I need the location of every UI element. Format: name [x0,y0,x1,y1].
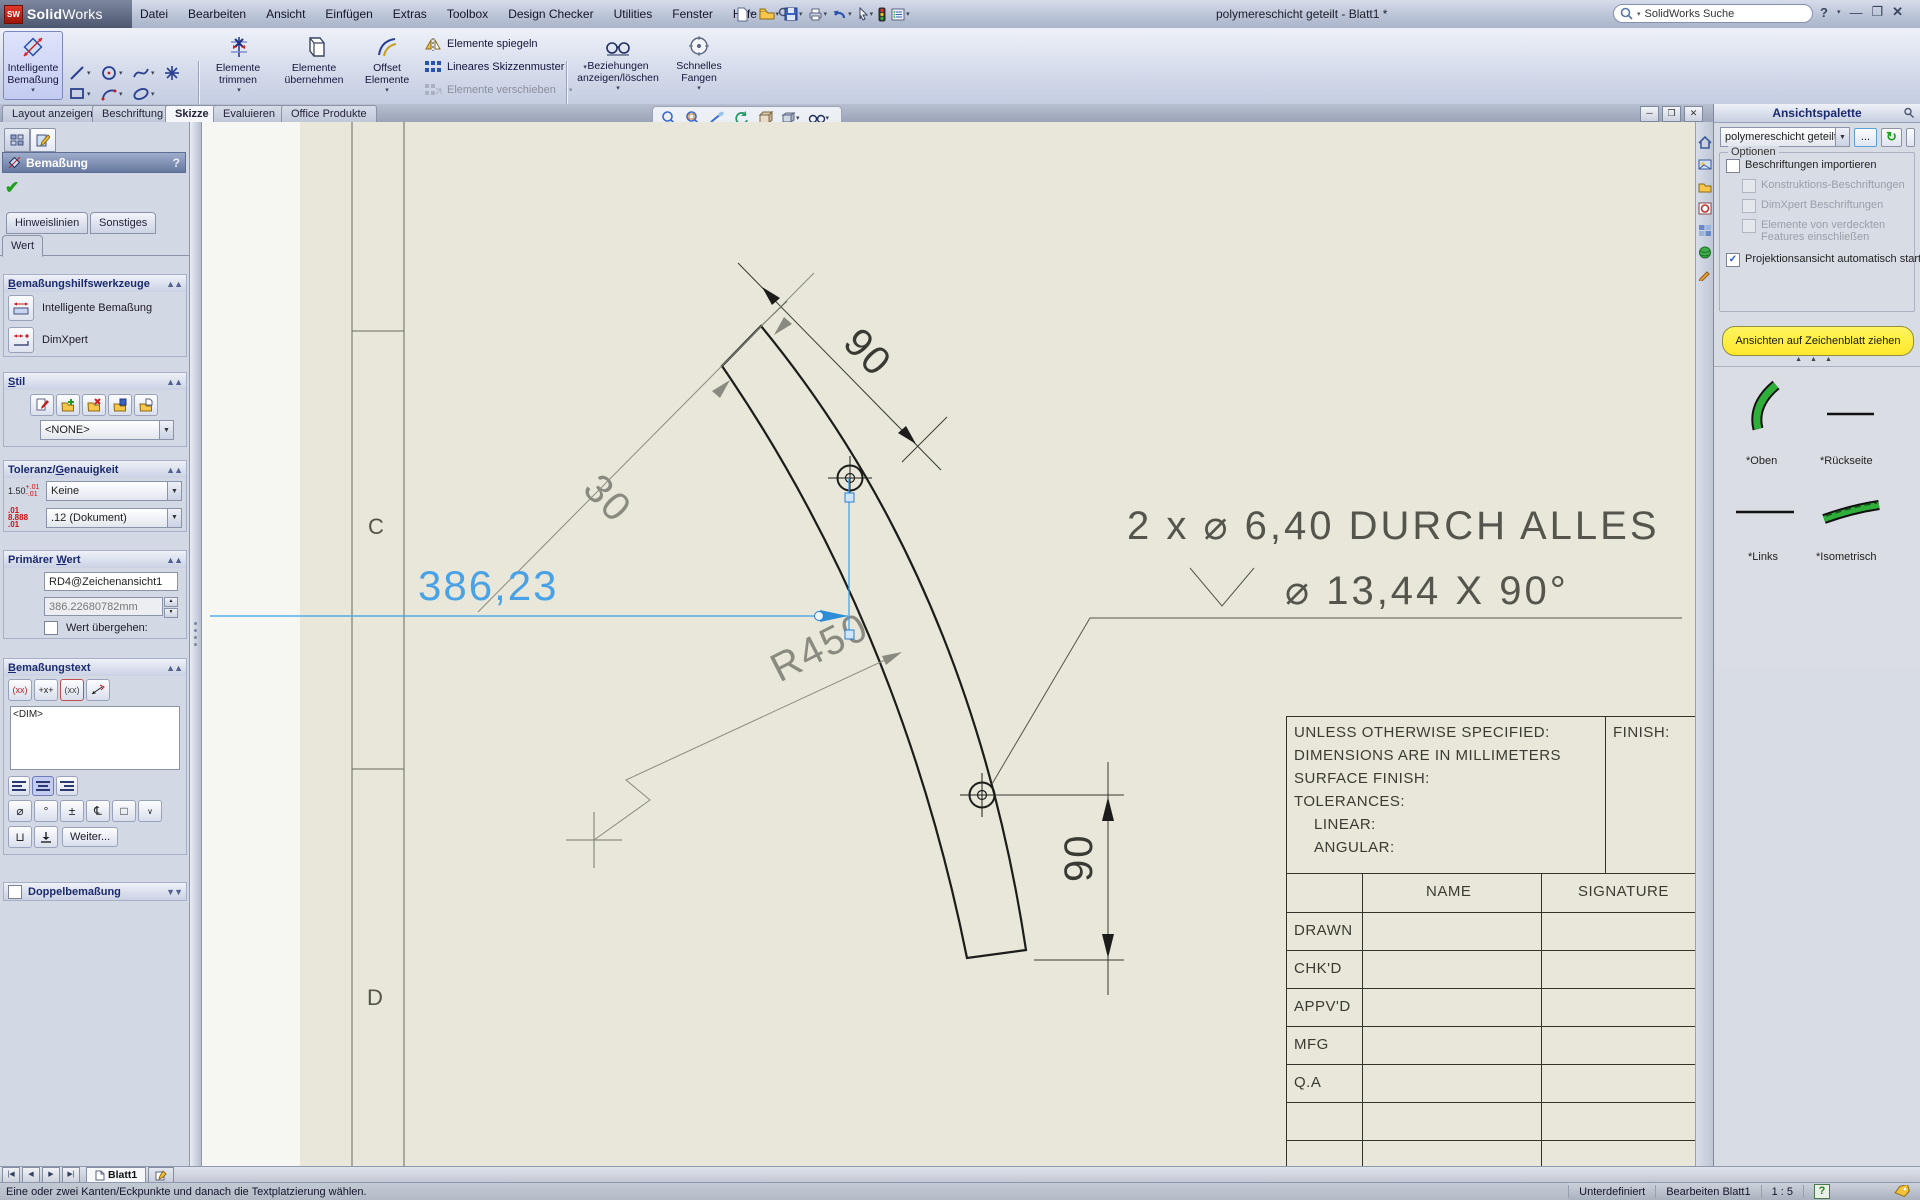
menu-item-bearbeiten[interactable]: Bearbeiten [188,7,246,21]
status-scale: 1 : 5 [1761,1185,1803,1198]
new-document-caret-icon[interactable]: ▾ [750,10,754,18]
smart-dimension-tool[interactable]: Intelligente Bemaßung [4,292,186,324]
style-delete-button[interactable] [82,394,106,416]
title-block: UNLESS OTHERWISE SPECIFIED: DIMENSIONS A… [1286,716,1695,1166]
refresh-palette-button[interactable]: ↻ [1881,128,1902,147]
menu-item-toolbox[interactable]: Toolbox [447,7,488,21]
style-dropdown-caret-icon[interactable]: ▼ [159,421,173,439]
leader-text-button[interactable] [86,679,110,701]
section-header[interactable]: Primärer Wert▲▲ [4,551,186,568]
offset-entities-icon [375,35,399,59]
sketch-line-caret-icon[interactable]: ▾ [87,69,91,77]
browse-document-button[interactable]: ... [1854,128,1877,147]
section-tolerance: Toleranz/Genauigkeit▲▲ 1.50 +.01-.01 Kei… [3,460,187,532]
next-sheet-button[interactable]: ▶ [42,1167,60,1183]
sketch-line-button[interactable]: ▾ [68,62,94,84]
dimension-386-text[interactable]: 386,23 [418,562,558,609]
document-dropdown-caret-icon[interactable]: ▼ [1835,128,1849,146]
check-auto-projected-view[interactable]: ✓Projektionsansicht automatisch starten [1726,253,1910,267]
command-manager-toolbar: IntelligenteBemaßung ▾ ▾ ▾ ▾ ▾ ▾ ▾ ▾ ▾ E… [0,28,1920,105]
pm-tab-sonstiges[interactable]: Sonstiges [90,212,156,234]
view-palette-header: Ansichtspalette [1714,104,1920,123]
add-sheet-tab[interactable] [148,1167,174,1183]
collapse-chevron-icon[interactable]: ▲▲ [166,663,182,673]
section-header[interactable]: Doppelbemaßung▼▼ [4,883,186,900]
trim-entities-icon [227,35,251,59]
file-explorer-icon[interactable] [1698,180,1712,193]
tb-row-drawn: DRAWN [1294,922,1353,939]
check-dimxpert-annotations[interactable]: DimXpert Beschriftungen [1742,199,1910,213]
more-symbols-button[interactable]: Weiter... [62,827,118,847]
solidworks-cube-icon: SW [4,5,23,24]
trim-entities-caret-icon[interactable]: ▾ [207,86,271,94]
resources-home-icon[interactable] [1698,136,1712,149]
thumb-oben[interactable] [1757,385,1776,429]
tolerance-caret-icon[interactable]: ▼ [167,482,181,500]
new-document-button[interactable]: ▾ [735,4,755,24]
section-header[interactable]: BBemaßungshilfswerkzeugeemaßungshilfswer… [4,275,186,292]
doc-close-button[interactable]: ✕ [1684,106,1703,122]
sheet-tab-blatt1[interactable]: Blatt1 [86,1167,146,1183]
app-name: SolidWorks [27,6,103,22]
sketch-ellipse-button[interactable]: ▾ [132,83,158,105]
style-dropdown-value: <NONE> [41,424,159,436]
align-right-button[interactable] [56,776,78,796]
command-tabs-strip: Layout anzeigen Beschriftung Skizze Eval… [0,104,1713,123]
section-header[interactable]: Toleranz/Genauigkeit▲▲ [4,461,186,478]
view-label-rueckseite[interactable]: *Rückseite [1820,455,1873,467]
pm-ok-button[interactable]: ✔ [5,178,19,198]
style-load-button[interactable] [134,394,158,416]
tb-note-4: TOLERANCES: [1294,793,1405,810]
dimxpert-tool[interactable]: DimXpert [4,324,186,356]
value-spinner[interactable]: ▲▼ [164,597,178,618]
spinner-up-icon[interactable]: ▲ [164,597,178,607]
sketch-arc-button[interactable]: ▾ [100,83,126,105]
style-apply-default-button[interactable] [30,394,54,416]
relations-label2: anzeigen/löschen [577,72,659,84]
trim-entities-label: Elemente trimmen [207,62,269,86]
pm-tab-hinweislinien[interactable]: Hinweislinien [6,212,88,234]
quick-snaps-label1: Schnelles [676,60,722,72]
symbol-diameter-button[interactable]: ⌀ [8,800,32,822]
open-caret-icon[interactable]: ▾ [776,10,780,18]
dimxpert-tool-icon [8,327,34,353]
move-entities-icon [424,82,442,98]
add-parentheses-button[interactable]: (xx) [8,679,32,701]
tab-layout-anzeigen[interactable]: Layout anzeigen [2,105,103,123]
symbol-square-button[interactable]: □ [112,800,136,822]
check-label: Konstruktions-Beschriftungen [1761,179,1905,191]
open-button[interactable]: ▾ [758,4,781,24]
sketch-ellipse-caret-icon[interactable]: ▾ [151,90,155,98]
style-dropdown[interactable]: <NONE>▼ [40,420,174,440]
status-state: Unterdefiniert [1568,1185,1655,1198]
view-label-isometrisch[interactable]: *Isometrisch [1816,551,1877,563]
menu-bar: Datei Bearbeiten Ansicht Einfügen Extras… [140,0,789,28]
pm-help-button[interactable]: ? [173,156,180,170]
menu-item-fenster[interactable]: Fenster [672,7,713,21]
section-primary-value: Primärer Wert▲▲ RD4@Zeichenansicht1 386.… [3,550,187,639]
options-group: Optionen Beschriftungen importieren Kons… [1719,152,1915,312]
convert-entities-button[interactable]: Elemente übernehmen [276,31,354,100]
splitter-grip[interactable] [194,622,198,658]
design-library-icon[interactable] [1698,158,1712,171]
panel-splitter[interactable] [190,122,202,1166]
oval-text-button[interactable]: (xx) [60,679,84,701]
selection-handle [845,630,854,639]
window-controls: ? ▾ — ❐ ✕ [1820,4,1903,20]
view-label-oben[interactable]: *Oben [1746,455,1777,467]
doc-minimize-button[interactable]: ─ [1640,106,1659,122]
tab-beschriftung[interactable]: Beschriftung [92,105,173,123]
dimension-icon [8,156,21,169]
first-sheet-button[interactable]: |◀ [2,1167,20,1183]
view-label-links[interactable]: *Links [1748,551,1778,563]
view-thumbnails: *Oben *Rückseite *Links *Isometrisch [1714,366,1920,667]
linear-pattern-icon [424,59,442,75]
options-group-label: Optionen [1728,146,1779,158]
document-dropdown[interactable]: polymereschicht geteilt▼ [1720,127,1850,147]
dimension-90-vertical[interactable]: 90 [996,762,1124,995]
tb-row-mfg: MFG [1294,1036,1329,1053]
title-bar: SW SolidWorks Datei Bearbeiten Ansicht E… [0,0,1920,29]
align-center-button[interactable] [32,776,54,796]
dual-dimension-label: Doppelbemaßung [28,886,121,898]
symbol-degree-button[interactable]: ° [34,800,58,822]
override-value-label: Wert übergehen: [66,622,148,634]
prev-sheet-button[interactable]: ◀ [22,1167,40,1183]
clipped-button[interactable] [1906,128,1915,147]
tolerance-type-dropdown[interactable]: Keine▼ [46,481,182,501]
section-dual-dimension: Doppelbemaßung▼▼ [3,882,187,901]
smart-dimension-label2: Bemaßung [7,74,58,86]
dimension-90-top-text[interactable]: 90 [835,320,900,385]
app-name-light: Works [62,6,102,22]
collapse-chevron-icon[interactable]: ▲▲ [166,555,182,565]
app-name-bold: Solid [27,6,62,22]
quick-snaps-icon [688,35,710,57]
selection-handle [845,493,854,502]
check-hidden-feature-items[interactable]: Elemente von verdeckten Features einschl… [1742,219,1910,243]
palette-collapse-arrows-icon[interactable]: ▲▲▲ [1714,356,1920,363]
search-icon [1620,7,1633,20]
smart-dimension-button[interactable]: IntelligenteBemaßung ▾ [3,31,63,100]
print-button[interactable]: ▾ [807,4,829,24]
property-manager-header: Bemaßung ? [2,152,186,173]
linear-pattern-label: Lineares Skizzenmuster [447,61,564,73]
appearances-icon[interactable] [1698,224,1712,237]
document-title: polymereschicht geteilt - Blatt1 * [1216,7,1387,21]
undo-caret-icon[interactable]: ▾ [848,10,852,18]
style-save-button[interactable] [108,394,132,416]
task-pane-tab-strip [1695,122,1713,1166]
status-help[interactable]: ? [1803,1185,1840,1198]
tb-note-3: SURFACE FINISH: [1294,770,1430,787]
collapse-chevron-icon[interactable]: ▲▲ [166,465,182,475]
sketch-rectangle-button[interactable]: ▾ [68,83,94,105]
dim-token: <DIM> [13,709,43,720]
hide-show-caret-icon[interactable]: ▾ [826,114,830,122]
search-caret-icon[interactable]: ▾ [1637,10,1641,18]
offset-entities-label1: Offset [373,62,401,74]
property-manager-title: Bemaßung [26,156,88,170]
tb-row-appvd: APPV'D [1294,998,1351,1015]
view-palette-icon[interactable] [1698,202,1712,215]
performance-button[interactable] [877,4,887,24]
sheet-icon [95,1170,105,1181]
precision-icon: .018.888.01 [8,507,38,528]
help-caret-icon[interactable]: ▾ [1837,8,1841,16]
drag-views-button[interactable]: Ansichten auf Zeichenblatt ziehen [1722,326,1914,356]
last-sheet-button[interactable]: ▶| [62,1167,80,1183]
search-box[interactable]: ▾ SolidWorks Suche [1613,4,1813,23]
mirror-entities-icon [424,36,442,52]
precision-dropdown[interactable]: .12 (Dokument)▼ [46,508,182,528]
document-window-controls: ─ ❒ ✕ [1640,106,1703,122]
pin-icon[interactable] [1903,107,1915,119]
sketch-point-button[interactable] [164,62,190,84]
tab-evaluieren[interactable]: Evaluieren [213,105,285,123]
drawing-canvas[interactable]: C D [202,122,1695,1166]
sheet-tab-bar: |◀ ◀ ▶ ▶| Blatt1 [0,1166,1920,1182]
collapse-chevron-icon[interactable]: ▲▲ [166,377,182,387]
thumb-isometrisch[interactable] [1824,503,1879,519]
dimension-r450[interactable]: R450 [566,604,902,868]
save-button[interactable]: ▾ [783,4,804,24]
tb-row-qa: Q.A [1294,1074,1321,1091]
tb-note-5: LINEAR: [1314,816,1376,833]
dimension-90-vertical-text[interactable]: 90 [1057,834,1101,883]
display-delete-relations-button[interactable]: Beziehungenanzeigen/löschen ▾ [572,31,664,100]
select-caret-icon[interactable]: ▾ [870,10,874,18]
solidworks-window: SW SolidWorks Datei Bearbeiten Ansicht E… [0,0,1920,1200]
save-caret-icon[interactable]: ▾ [799,10,803,18]
feature-manager-tab[interactable] [4,128,30,152]
restore-button[interactable]: ❐ [1871,4,1883,20]
section-dimension-assist: BBemaßungshilfswerkzeugeemaßungshilfswer… [3,274,187,357]
dimension-30-text[interactable]: 30 [575,466,640,531]
convert-entities-icon [304,35,326,59]
status-hint: Eine oder zwei Kanten/Eckpunkte und dana… [0,1183,1568,1200]
quick-snaps-button[interactable]: SchnellesFangen ▾ [668,31,730,100]
smart-dimension-tool-icon [8,295,34,321]
close-button[interactable]: ✕ [1892,4,1903,20]
menu-item-datei[interactable]: Datei [140,7,168,21]
eyeglasses-icon [605,35,631,57]
symbol-depth-button[interactable] [34,826,58,848]
check-import-annotations[interactable]: Beschriftungen importieren [1726,159,1910,173]
check-label: DimXpert Beschriftungen [1761,199,1883,211]
menu-item-ansicht[interactable]: Ansicht [266,7,305,21]
sketch-spline-caret-icon[interactable]: ▾ [151,69,155,77]
view-palette-panel: Ansichtspalette polymereschicht geteilt▼… [1713,104,1920,1166]
zone-label-d: D [367,985,383,1010]
mirror-entities-button[interactable]: Elemente spiegeln [424,35,538,53]
smart-dimension-icon [21,35,45,59]
quick-access-toolbar: ▾ ▾ ▾ ▾ ▾ ▾ ▾ [735,3,911,25]
minimize-button[interactable]: — [1849,5,1862,20]
sketch-circle-button[interactable]: ▾ [100,62,126,84]
scenes-icon[interactable] [1698,246,1712,259]
countersink-icon [1190,568,1254,606]
collapse-chevron-icon[interactable]: ▲▲ [166,279,182,289]
status-tag-icon[interactable] [1840,1185,1920,1198]
check-label: Beschriftungen importieren [1745,159,1876,171]
smart-dimension-tool-label: Intelligente Bemaßung [42,302,152,314]
hole-callout-line2[interactable]: ⌀ 13,44 X 90° [1285,568,1569,614]
symbol-centerline-button[interactable]: ℄ [86,800,110,822]
tb-row-chkd: CHK'D [1294,960,1342,977]
smart-dimension-caret-icon[interactable]: ▾ [4,86,62,94]
doc-restore-button[interactable]: ❒ [1662,106,1681,122]
spinner-down-icon[interactable]: ▼ [164,608,178,618]
tb-note-2: DIMENSIONS ARE IN MILLIMETERS [1294,747,1561,764]
options-button[interactable]: ▾ [890,4,911,24]
dimension-text-area[interactable]: <DIM> [10,706,180,770]
section-header[interactable]: Stil▲▲ [4,373,186,390]
quick-snaps-caret-icon[interactable]: ▾ [669,84,729,92]
dimxpert-tool-label: DimXpert [42,334,88,346]
tb-finish-label: FINISH: [1613,724,1670,741]
check-label: Projektionsansicht automatisch starten [1745,253,1920,265]
options-caret-icon[interactable]: ▾ [906,10,910,18]
convert-entities-label: Elemente übernehmen [277,62,351,86]
search-input[interactable]: SolidWorks Suche [1645,8,1735,20]
property-manager-panel: Bemaßung ? ✔ Hinweislinien Sonstiges Wer… [0,122,190,1166]
override-value-checkbox[interactable] [44,621,58,635]
hole-callout-line1[interactable]: 2 x ⌀ 6,40 DURCH ALLES [1127,503,1660,549]
symbol-more-caret-icon[interactable]: ∨ [138,800,162,822]
trim-entities-button[interactable]: Elemente trimmen ▾ [206,31,272,100]
tolerance-type-icon: 1.50 +.01-.01 [8,484,38,498]
check-construction-annotations[interactable]: Konstruktions-Beschriftungen [1742,179,1910,193]
move-entities-label: Elemente verschieben [447,84,556,96]
offset-entities-label2: Elemente [365,74,409,86]
dimension-name-field[interactable]: RD4@Zeichenansicht1 [44,572,178,591]
help-button[interactable]: ? [1820,5,1828,20]
dual-dimension-checkbox[interactable] [8,885,22,899]
zone-label-c: C [368,514,384,539]
align-left-button[interactable] [8,776,30,796]
sheet-tab-label: Blatt1 [108,1169,137,1181]
offset-entities-caret-icon[interactable]: ▾ [359,86,415,94]
style-add-button[interactable] [56,394,80,416]
tb-note-6: ANGULAR: [1314,839,1395,856]
document-dropdown-value: polymereschicht geteilt [1721,131,1835,143]
print-caret-icon[interactable]: ▾ [824,10,828,18]
dimension-386-selected[interactable]: 386,23 [210,478,854,639]
display-style-caret-icon[interactable]: ▾ [796,114,800,122]
check-label: Elemente von verdeckten Features einschl… [1761,219,1910,243]
quick-snaps-label2: Fangen [681,72,717,84]
precision-value: .12 (Dokument) [47,512,167,524]
dimension-value-field[interactable]: 386.22680782mm [44,597,163,616]
symbol-counterbore-button[interactable]: ⊔ [8,826,32,848]
tab-office-produkte[interactable]: Office Produkte [281,105,377,123]
sketch-arc-caret-icon[interactable]: ▾ [119,90,123,98]
tb-note-1: UNLESS OTHERWISE SPECIFIED: [1294,724,1550,741]
offset-text-button[interactable]: +x+ [34,679,58,701]
sketch-circle-caret-icon[interactable]: ▾ [119,69,123,77]
mirror-entities-label: Elemente spiegeln [447,38,538,50]
section-dimension-text: Bemaßungstext▲▲ (xx) +x+ (xx) <DIM> ⌀ ° … [3,658,187,855]
relations-label1: Beziehungen [587,60,648,72]
section-header[interactable]: Bemaßungstext▲▲ [4,659,186,676]
sketch-rectangle-caret-icon[interactable]: ▾ [87,90,91,98]
view-palette-title: Ansichtspalette [1772,106,1861,120]
symbol-plusminus-button[interactable]: ± [60,800,84,822]
linear-pattern-button[interactable]: Lineares Skizzenmuster ▾ [424,58,587,76]
pm-tab-wert[interactable]: Wert [2,235,43,257]
select-button[interactable]: ▾ [856,4,875,24]
smart-dimension-label1: Intelligente [8,62,59,74]
menu-item-einfuegen[interactable]: Einfügen [325,7,372,21]
property-manager-tab[interactable] [30,128,56,152]
sketch-spline-button[interactable]: ▾ [132,62,158,84]
status-mode: Bearbeiten Blatt1 [1655,1185,1760,1198]
menu-item-utilities[interactable]: Utilities [614,7,653,21]
tb-col-name: NAME [1426,883,1471,900]
relations-caret-icon[interactable]: ▾ [573,84,663,92]
move-entities-button[interactable]: Elemente verschieben ▾ [424,81,572,99]
tb-col-signature: SIGNATURE [1578,883,1669,900]
precision-caret-icon[interactable]: ▼ [167,509,181,527]
status-bar: Eine oder zwei Kanten/Eckpunkte und dana… [0,1182,1920,1200]
menu-item-extras[interactable]: Extras [393,7,427,21]
custom-properties-icon[interactable] [1698,268,1712,281]
tab-skizze[interactable]: Skizze [165,105,219,123]
offset-entities-button[interactable]: OffsetElemente ▾ [358,31,416,100]
expand-chevron-icon[interactable]: ▼▼ [166,887,182,897]
app-logo: SW SolidWorks [0,0,132,28]
section-style: Stil▲▲ <NONE>▼ [3,372,187,447]
tolerance-value: Keine [47,485,167,497]
menu-item-design-checker[interactable]: Design Checker [508,7,593,21]
undo-button[interactable]: ▾ [831,4,853,24]
